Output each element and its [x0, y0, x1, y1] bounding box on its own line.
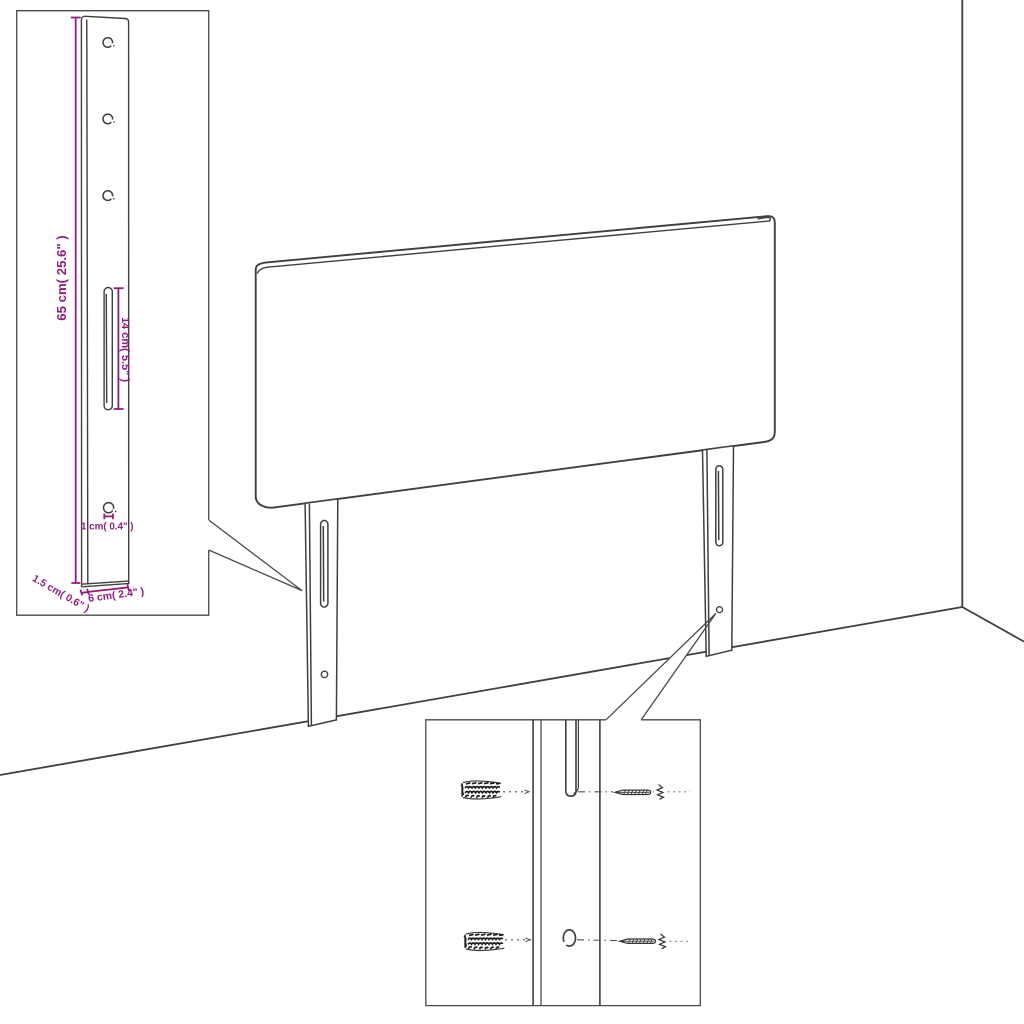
- svg-text:65 cm( 25.6" ): 65 cm( 25.6" ): [54, 235, 69, 320]
- svg-text:1 cm( 0.4" ): 1 cm( 0.4" ): [81, 521, 134, 532]
- svg-text:14 cm( 5.5" ): 14 cm( 5.5" ): [119, 317, 131, 382]
